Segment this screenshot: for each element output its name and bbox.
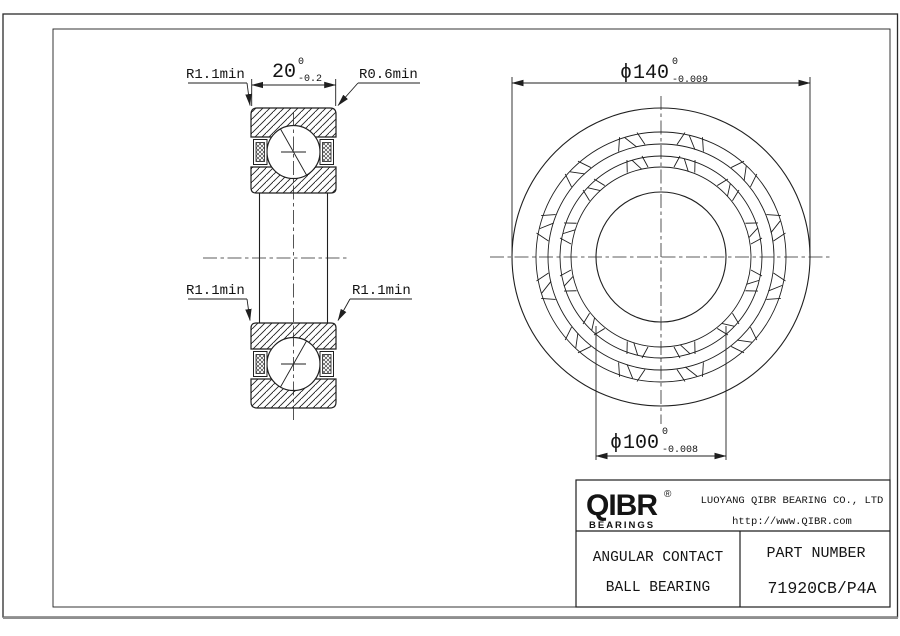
od-dim-tol-upper: 0: [672, 57, 678, 68]
bore-dim-tol-lower: -0.008: [662, 445, 698, 456]
logo-subtext: BEARINGS: [589, 520, 655, 531]
title-block: QIBR ® BEARINGS LUOYANG QIBR BEARING CO.…: [576, 480, 890, 607]
product-type-line2: BALL BEARING: [606, 580, 710, 596]
registered-trademark-icon: ®: [664, 489, 672, 500]
width-dim-value: 20: [272, 61, 296, 84]
radius-label-top-right: R0.6min: [359, 67, 418, 83]
radius-leader-bottom-right: R1.1min: [338, 283, 412, 321]
bearing-drawing: 20 0 -0.2 R1.1min R0.6min R1.1min R1.1mi…: [0, 0, 900, 636]
product-type-line1: ANGULAR CONTACT: [593, 550, 724, 566]
part-number-cell: PART NUMBER 71920CB/P4A: [766, 545, 876, 598]
bore-dim-tol-upper: 0: [662, 427, 668, 438]
od-dim-tol-lower: -0.009: [672, 75, 708, 86]
cross-section-view: 20 0 -0.2 R1.1min R0.6min R1.1min R1.1mi…: [186, 57, 420, 420]
od-dim-value: 140: [633, 62, 669, 85]
product-type-cell: ANGULAR CONTACT BALL BEARING: [593, 550, 724, 596]
radius-label-top-left: R1.1min: [186, 67, 245, 83]
od-dim-symbol: ϕ: [620, 62, 632, 85]
width-dimension: 20 0 -0.2: [252, 57, 336, 106]
part-number-label: PART NUMBER: [766, 545, 865, 562]
radius-label-bottom-right: R1.1min: [352, 283, 411, 299]
radius-leader-top-right: R0.6min: [338, 67, 420, 106]
radius-leader-bottom-left: R1.1min: [186, 283, 250, 321]
width-dim-tol-upper: 0: [298, 57, 304, 68]
company-website: http://www.QIBR.com: [732, 516, 852, 528]
radius-label-bottom-left: R1.1min: [186, 283, 245, 299]
brand-logo: QIBR ® BEARINGS: [586, 489, 672, 531]
drawing-sheet: 20 0 -0.2 R1.1min R0.6min R1.1min R1.1mi…: [0, 0, 900, 636]
width-dim-tol-lower: -0.2: [298, 74, 322, 85]
company-name: LUOYANG QIBR BEARING CO., LTD: [701, 495, 884, 507]
part-number-value: 71920CB/P4A: [768, 579, 877, 598]
radius-leader-top-left: R1.1min: [186, 67, 250, 106]
logo-text: QIBR: [586, 489, 658, 522]
bore-dim-symbol: ϕ: [610, 432, 622, 455]
bore-dim-value: 100: [623, 432, 659, 455]
front-view: ϕ 140 0 -0.009 ϕ 100 0 -0.008: [490, 57, 833, 460]
